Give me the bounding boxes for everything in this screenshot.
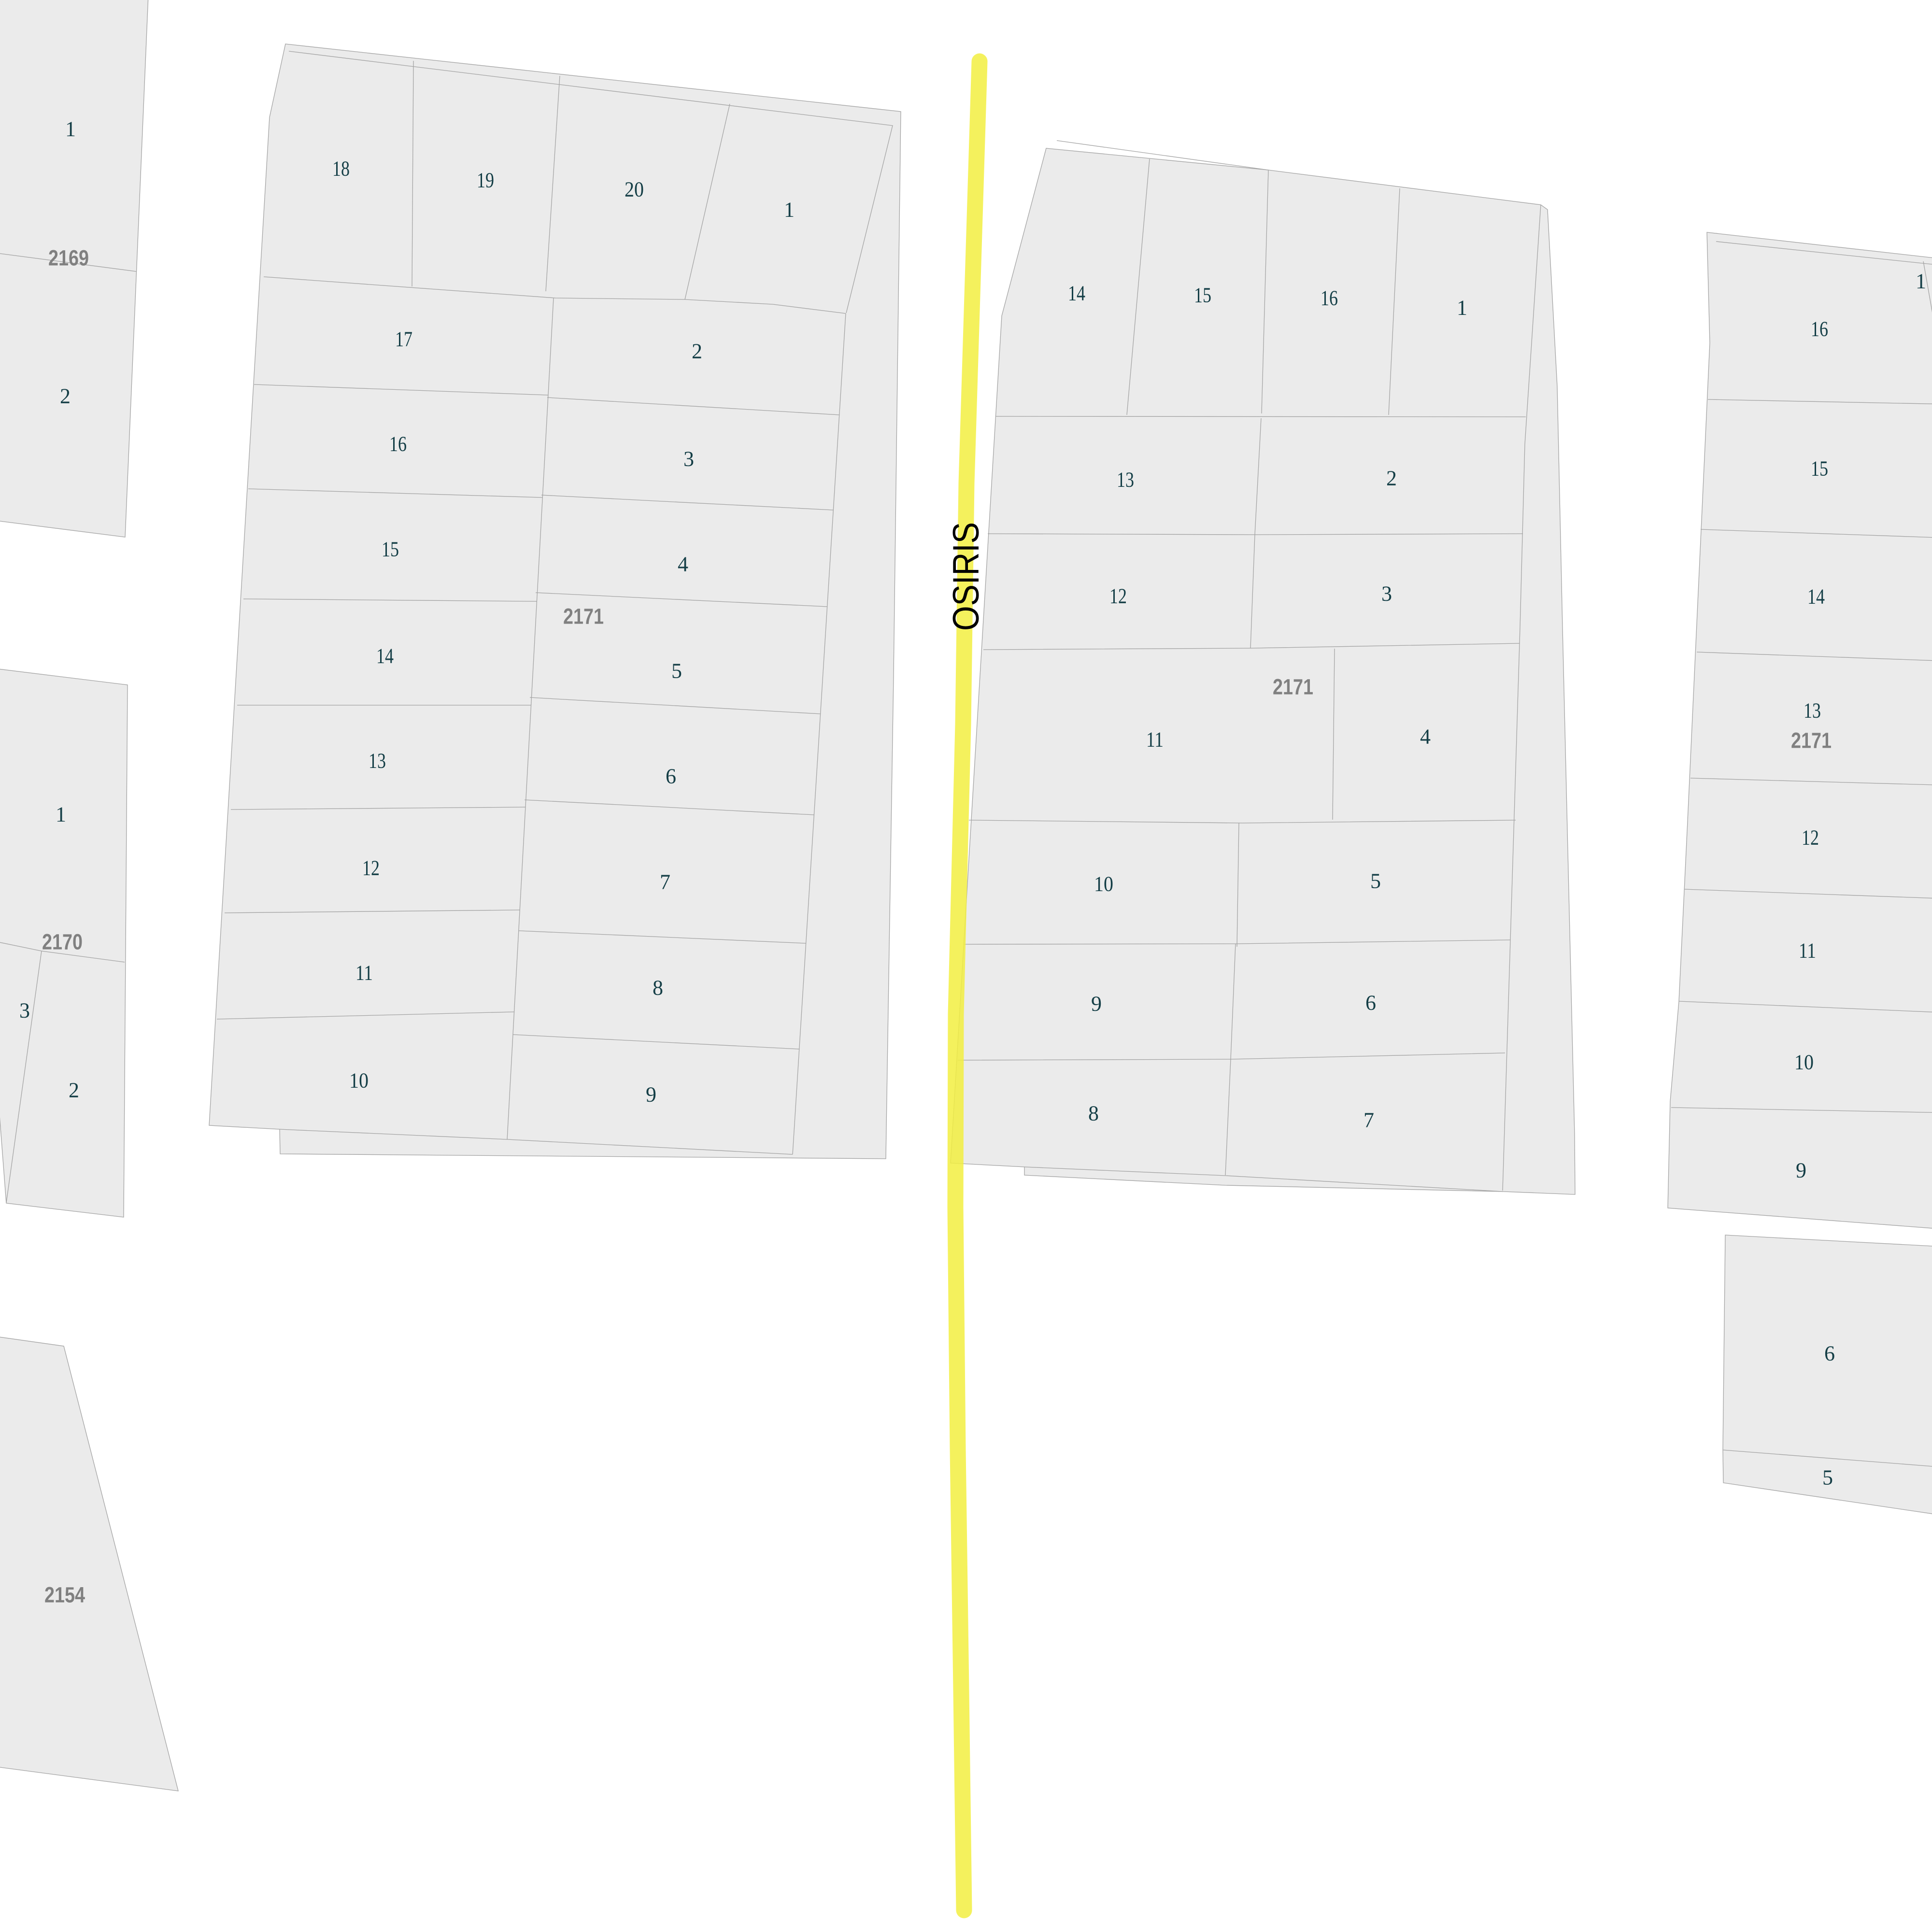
svg-text:2: 2 (60, 384, 71, 408)
svg-text:2: 2 (1386, 467, 1397, 490)
svg-text:13: 13 (1804, 699, 1821, 723)
svg-text:9: 9 (646, 1083, 656, 1107)
svg-text:13: 13 (369, 749, 386, 773)
svg-text:1: 1 (1457, 296, 1467, 320)
svg-text:1: 1 (784, 198, 795, 222)
svg-text:12: 12 (1109, 584, 1127, 608)
svg-text:2: 2 (692, 340, 702, 363)
svg-text:15: 15 (382, 538, 399, 561)
svg-text:10: 10 (1794, 1051, 1814, 1074)
svg-text:4: 4 (1420, 725, 1431, 749)
svg-text:6: 6 (1365, 991, 1376, 1015)
svg-text:14: 14 (1807, 585, 1825, 609)
svg-text:4: 4 (678, 553, 688, 576)
svg-text:11: 11 (1799, 939, 1816, 963)
svg-text:12: 12 (362, 856, 380, 880)
svg-text:3: 3 (683, 447, 694, 471)
svg-text:2169: 2169 (48, 246, 89, 270)
svg-text:5: 5 (1822, 1466, 1833, 1490)
svg-text:16: 16 (389, 432, 407, 456)
svg-text:8: 8 (653, 976, 663, 1000)
svg-text:2154: 2154 (44, 1583, 85, 1607)
svg-text:14: 14 (376, 644, 394, 668)
svg-text:1: 1 (1916, 270, 1926, 293)
svg-text:20: 20 (625, 178, 644, 201)
svg-text:3: 3 (19, 999, 30, 1023)
svg-text:2171: 2171 (1273, 675, 1313, 699)
svg-text:2171: 2171 (563, 604, 604, 629)
svg-text:15: 15 (1194, 284, 1211, 307)
svg-text:8: 8 (1088, 1102, 1099, 1125)
svg-text:2171: 2171 (1791, 728, 1832, 753)
svg-text:11: 11 (355, 961, 373, 985)
svg-text:9: 9 (1796, 1159, 1806, 1182)
svg-text:16: 16 (1811, 317, 1828, 341)
svg-text:15: 15 (1811, 457, 1828, 481)
svg-text:7: 7 (660, 870, 670, 894)
svg-text:2170: 2170 (42, 930, 83, 954)
svg-text:16: 16 (1321, 286, 1338, 310)
svg-text:14: 14 (1068, 282, 1085, 305)
svg-text:9: 9 (1091, 992, 1102, 1016)
svg-text:10: 10 (1094, 872, 1113, 896)
svg-text:6: 6 (666, 765, 676, 788)
svg-text:7: 7 (1364, 1108, 1374, 1132)
svg-text:2: 2 (69, 1079, 79, 1102)
svg-text:5: 5 (1370, 869, 1381, 893)
svg-text:10: 10 (349, 1069, 369, 1093)
svg-text:6: 6 (1824, 1342, 1835, 1365)
svg-text:1: 1 (56, 803, 66, 826)
svg-text:12: 12 (1802, 826, 1819, 850)
svg-text:19: 19 (477, 169, 494, 192)
svg-text:5: 5 (671, 659, 682, 683)
svg-text:1: 1 (65, 117, 76, 141)
svg-text:13: 13 (1117, 468, 1134, 492)
svg-text:11: 11 (1146, 728, 1164, 752)
svg-text:OSIRIS: OSIRIS (946, 522, 987, 631)
svg-text:18: 18 (332, 157, 350, 181)
svg-text:3: 3 (1381, 582, 1392, 606)
svg-text:17: 17 (395, 327, 412, 351)
